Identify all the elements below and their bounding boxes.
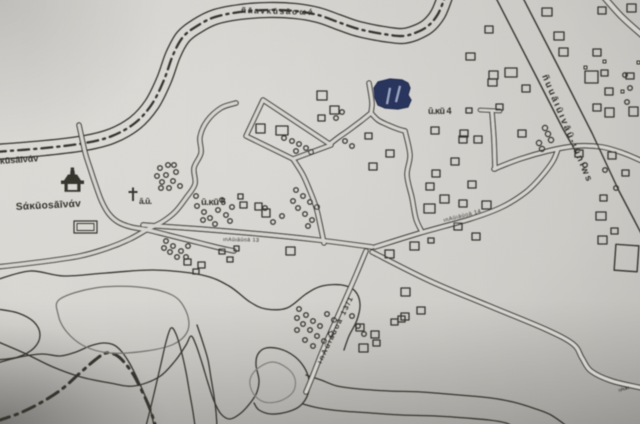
- svg-text:ā.ū.: ā.ū.: [139, 196, 152, 206]
- svg-text:ιnAūιāúoā 13: ιnAūιāúoā 13: [223, 237, 259, 244]
- svg-text:ū.κŭ 5: ū.κŭ 5: [201, 197, 227, 208]
- svg-text:ñāavκūsāσωá: ñāavκūsāσωá: [241, 5, 315, 17]
- svg-text:ū.κŭ 4: ū.κŭ 4: [428, 106, 452, 116]
